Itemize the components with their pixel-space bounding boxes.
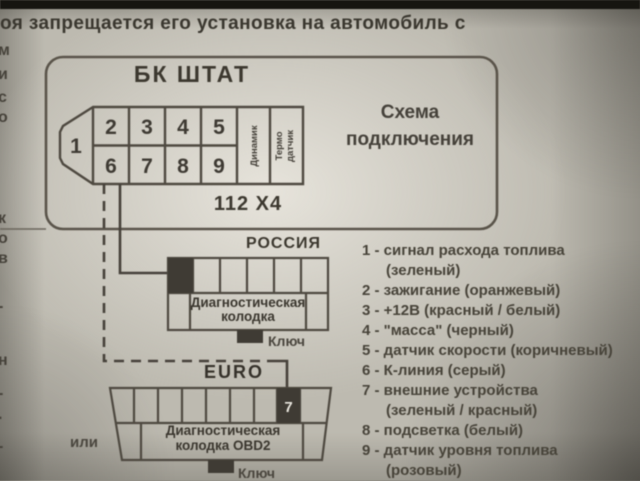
russia-connector-title: РОССИЯ xyxy=(246,235,321,253)
euro-pin7-number: 7 xyxy=(284,399,292,416)
legend-item-text: 6 - К-линия (серый) xyxy=(362,361,638,381)
legend-item-text: 1 - сигнал расхода топлива xyxy=(362,241,638,261)
scheme-title: Схема подключения xyxy=(320,99,500,153)
legend-item-text: 2 - зажигание (оранжевый) xyxy=(362,281,638,301)
euro-connector-label-line1: Диагностическая xyxy=(142,424,304,439)
legend-item: 2 - зажигание (оранжевый) xyxy=(362,281,638,301)
wire-legend: 1 - сигнал расхода топлива (зеленый) 2 -… xyxy=(362,241,638,481)
pin-9: 9 xyxy=(213,155,225,178)
russia-wire-pin-cell xyxy=(168,258,193,293)
pin-6: 6 xyxy=(105,155,117,178)
pin-5: 5 xyxy=(213,116,225,139)
legend-item: 3 - +12В (красный / белый) xyxy=(362,301,638,321)
pin-2: 2 xyxy=(105,116,117,139)
legend-item: 6 - К-линия (серый) xyxy=(362,361,638,381)
wire-to-euro-pin7 xyxy=(276,361,287,388)
legend-item: 4 - "масса" (черный) xyxy=(362,321,638,341)
scheme-title-line1: Схема xyxy=(320,99,500,126)
legend-item-text2: (розовый) xyxy=(362,461,638,481)
legend-item: 5 - датчик скорости (коричневый) xyxy=(362,341,638,361)
speaker-column-label: Динамик xyxy=(249,125,260,166)
russia-connector-label: Диагностическая колодка xyxy=(168,296,328,324)
russia-connector-label-line1: Диагностическая xyxy=(168,296,328,310)
legend-item: 7 - внешние устройства (зеленый / красны… xyxy=(362,381,638,421)
thermo-column-label-line2: датчик xyxy=(285,130,296,162)
russia-key-tab xyxy=(237,330,263,343)
russia-connector-label-line2: колодка xyxy=(168,310,328,324)
pin-7: 7 xyxy=(141,155,153,178)
russia-key-label: Ключ xyxy=(268,333,305,349)
legend-item-text: 5 - датчик скорости (коричневый) xyxy=(362,341,638,361)
legend-item-text2: (зеленый / красный) xyxy=(362,401,638,421)
thermo-column-label-line1: Термо xyxy=(274,131,285,160)
pin-3: 3 xyxy=(141,116,153,139)
connector-model-label: 112 X4 xyxy=(173,193,323,216)
legend-item: 8 - подсветка (белый) xyxy=(362,421,638,441)
legend-item-text2: (зеленый) xyxy=(362,261,638,281)
legend-item-text: 4 - "масса" (черный) xyxy=(362,321,638,341)
pin-8: 8 xyxy=(177,155,189,178)
pin-4: 4 xyxy=(177,116,189,139)
legend-item: 1 - сигнал расхода топлива (зеленый) xyxy=(362,241,638,281)
pin-1: 1 xyxy=(70,135,82,158)
photographed-manual-page: оя запрещается его установка на автомоби… xyxy=(0,0,640,480)
euro-connector-label: Диагностическая колодка OBD2 xyxy=(142,424,304,453)
legend-item-text: 8 - подсветка (белый) xyxy=(362,421,638,441)
or-label: или xyxy=(70,434,98,451)
euro-key-label: Ключ xyxy=(238,465,275,481)
legend-item: 9 - датчик уровня топлива (розовый) xyxy=(362,441,638,481)
euro-connector-title: EURO xyxy=(204,362,264,383)
scheme-title-line2: подключения xyxy=(320,126,500,153)
bk-connector-title: БК ШТАТ xyxy=(92,61,292,88)
legend-item-text: 3 - +12В (красный / белый) xyxy=(362,301,638,321)
euro-key-tab xyxy=(208,460,234,473)
euro-connector-label-line2: колодка OBD2 xyxy=(142,439,304,454)
legend-item-text: 7 - внешние устройства xyxy=(362,381,638,401)
legend-item-text: 9 - датчик уровня топлива xyxy=(362,441,638,461)
